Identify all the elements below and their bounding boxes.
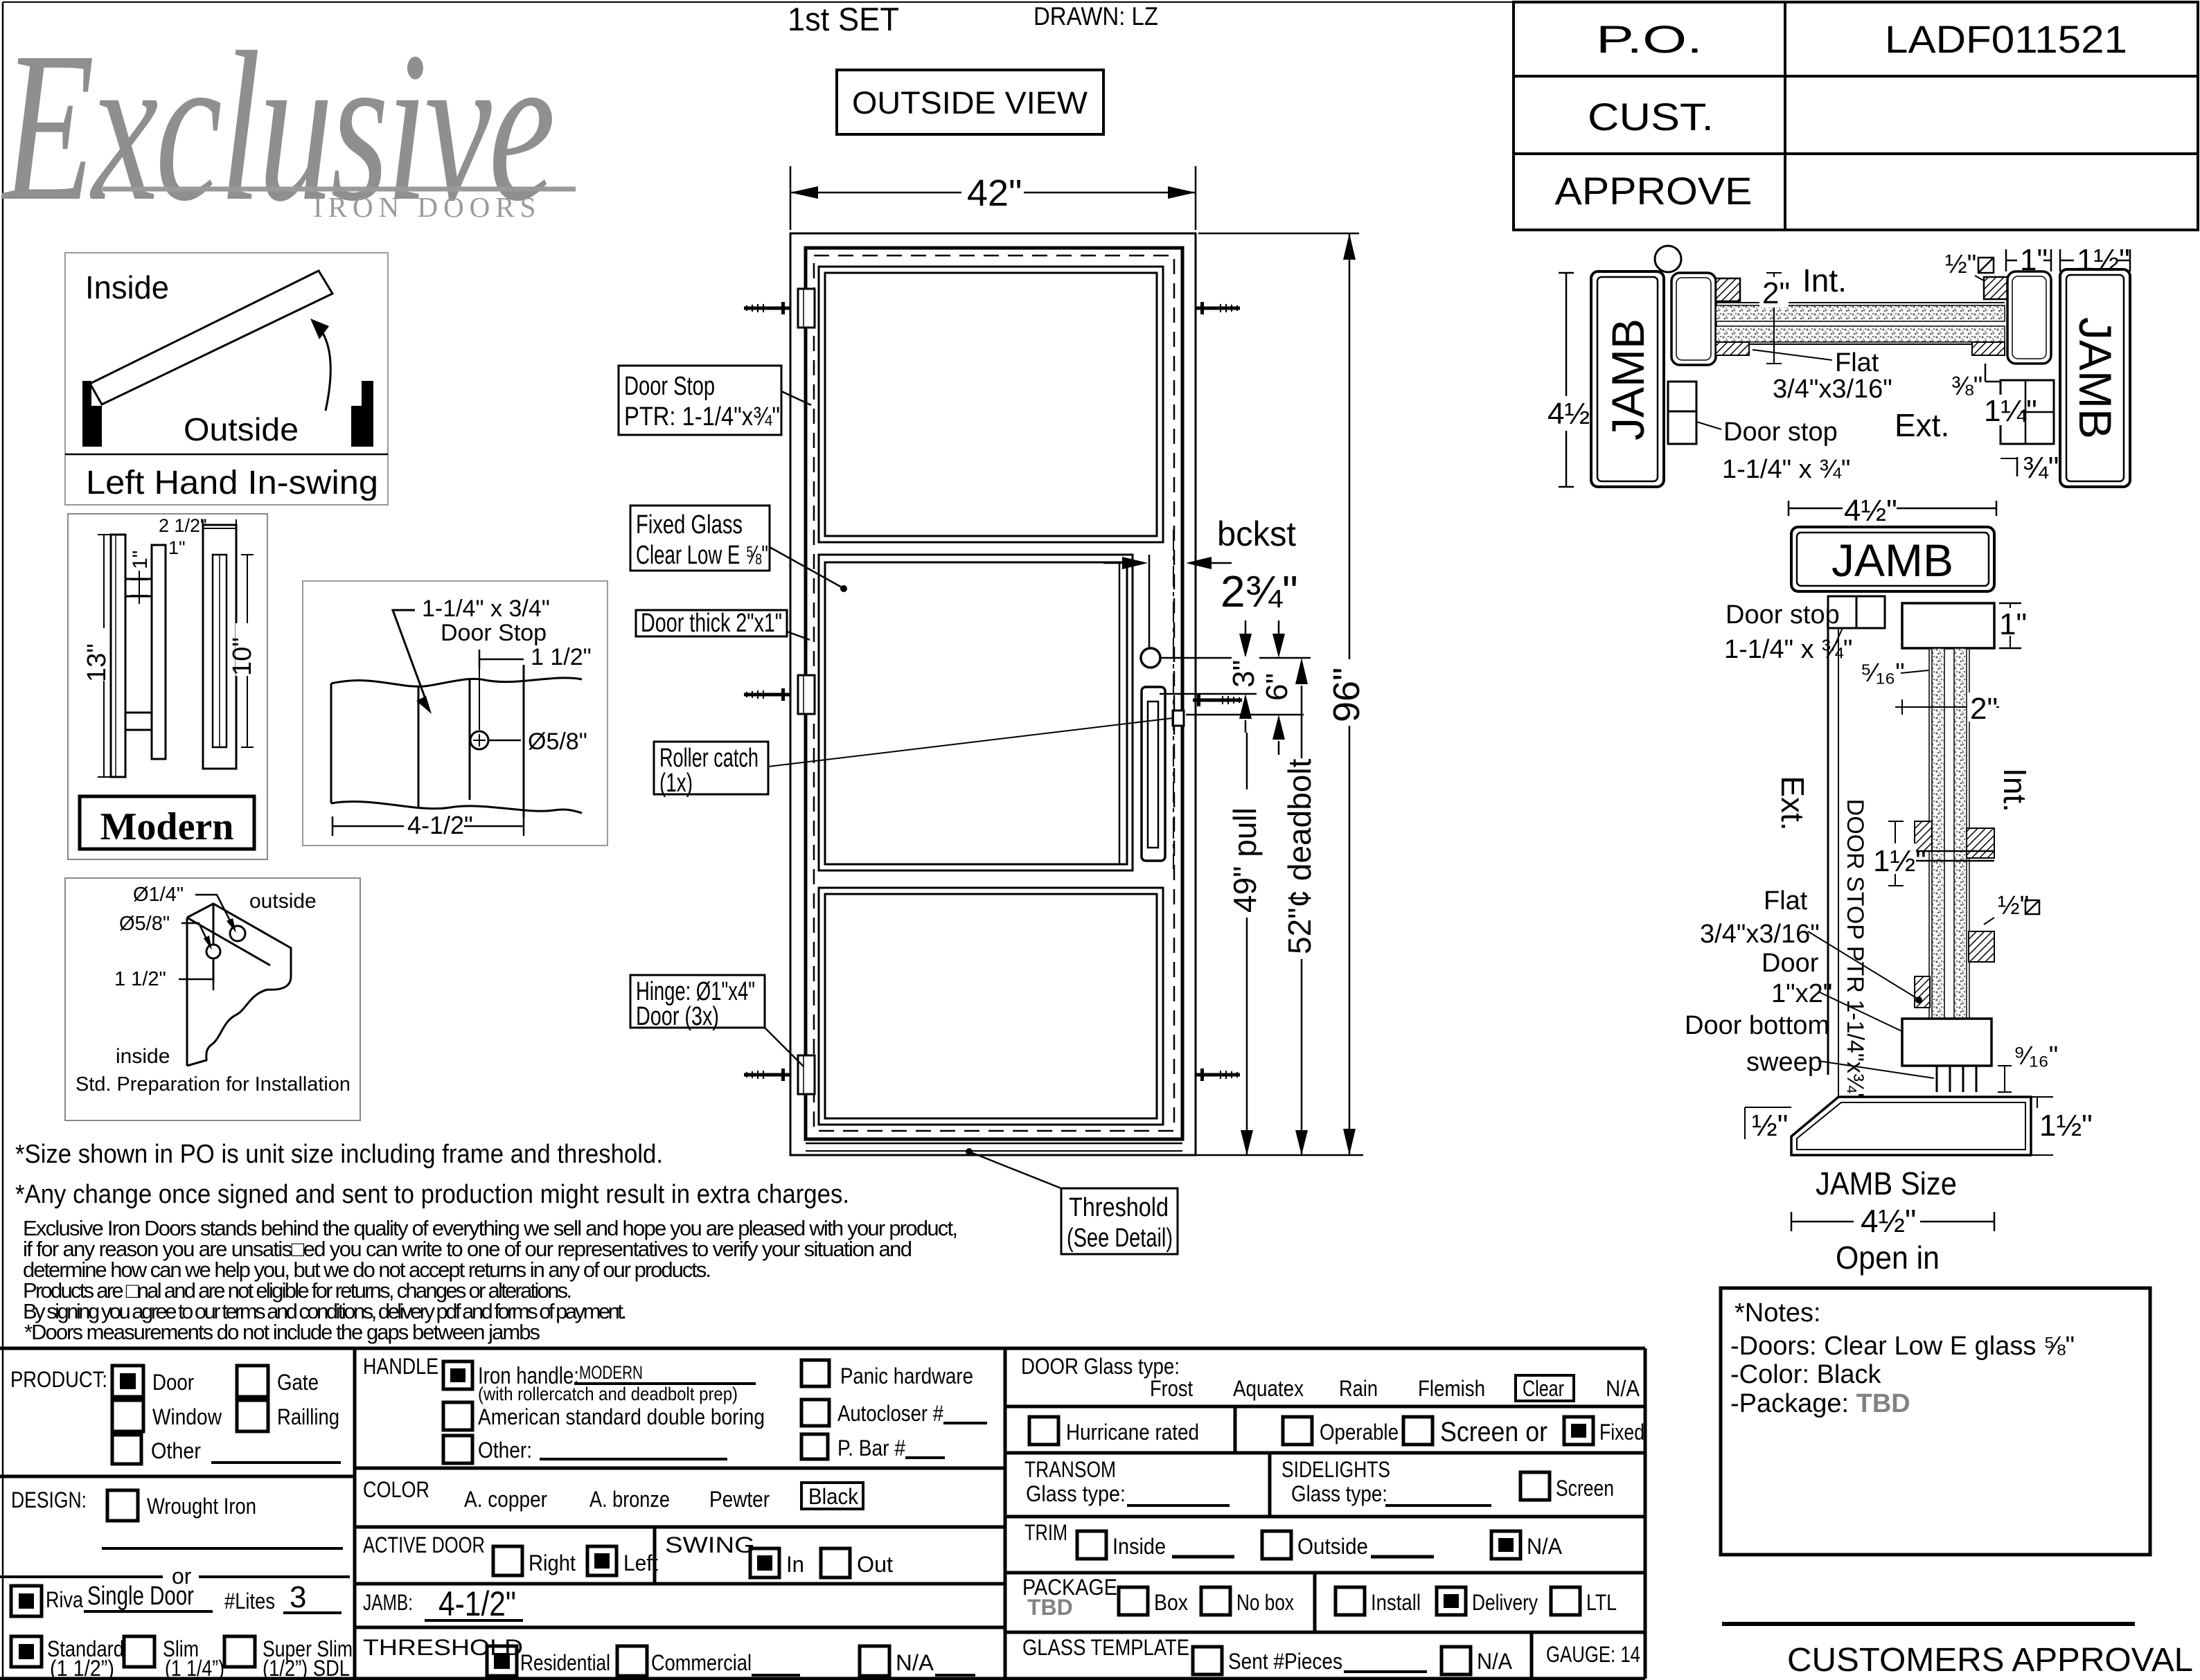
svg-text:GAUGE: 14: GAUGE: 14 <box>1546 1642 1640 1667</box>
svg-text:PRODUCT:: PRODUCT: <box>10 1367 107 1392</box>
svg-text:52"¢ deadbolt: 52"¢ deadbolt <box>1281 758 1318 954</box>
svg-text:Open in: Open in <box>1836 1240 1940 1276</box>
svg-text:Flemish: Flemish <box>1418 1376 1485 1401</box>
svg-text:Ø5/8": Ø5/8" <box>528 729 587 755</box>
svg-text:N/A: N/A <box>896 1650 934 1675</box>
svg-text:(1 1/4”): (1 1/4”) <box>165 1656 224 1680</box>
svg-text:(See Detail): (See Detail) <box>1067 1224 1173 1253</box>
svg-text:Commercial: Commercial <box>651 1650 752 1675</box>
svg-text:HANDLE: HANDLE <box>363 1354 438 1379</box>
svg-text:1-1/4" x ¾": 1-1/4" x ¾" <box>1724 635 1852 664</box>
svg-text:Operable: Operable <box>1320 1420 1399 1445</box>
svg-text:1": 1" <box>129 551 152 569</box>
svg-text:sweep: sweep <box>1746 1048 1822 1077</box>
svg-text:A. copper: A. copper <box>464 1487 547 1512</box>
svg-text:CUSTOMERS APPROVAL: CUSTOMERS APPROVAL <box>1787 1642 2193 1679</box>
svg-text:#Lites: #Lites <box>224 1589 275 1614</box>
svg-text:Ext.: Ext. <box>1775 776 1811 830</box>
svg-text:CUST.: CUST. <box>1588 95 1714 138</box>
svg-text:1-1/4" x 3/4": 1-1/4" x 3/4" <box>422 596 550 622</box>
svg-text:JAMB: JAMB <box>1831 535 1953 586</box>
svg-text:Std. Preparation for Installat: Std. Preparation for Installation <box>76 1073 351 1096</box>
svg-text:⁵⁄₁₆": ⁵⁄₁₆" <box>1861 659 1905 688</box>
svg-text:-Color: Black: -Color: Black <box>1730 1360 1881 1389</box>
svg-text:Fixed Glass: Fixed Glass <box>636 510 743 539</box>
svg-text:Ø1/4": Ø1/4" <box>133 884 184 906</box>
svg-text:3: 3 <box>290 1580 306 1614</box>
svg-text:Flat: Flat <box>1764 886 1808 915</box>
svg-text:Door stop: Door stop <box>1726 600 1840 629</box>
svg-text:inside: inside <box>116 1045 170 1068</box>
svg-text:Inside: Inside <box>85 269 169 305</box>
svg-text:-Doors: Clear Low E glass ⅝": -Doors: Clear Low E glass ⅝" <box>1730 1332 2075 1361</box>
svg-text:Ø5/8": Ø5/8" <box>119 913 170 935</box>
svg-text:Door (3x): Door (3x) <box>636 1002 719 1031</box>
svg-text:Railling: Railling <box>277 1404 339 1429</box>
svg-text:Delivery: Delivery <box>1472 1590 1538 1615</box>
svg-text:1¼": 1¼" <box>1984 394 2037 428</box>
svg-text:(1/2”) SDL: (1/2”) SDL <box>263 1656 350 1680</box>
svg-text:Door: Door <box>152 1370 194 1395</box>
svg-text:SIDELIGHTS: SIDELIGHTS <box>1281 1457 1390 1482</box>
svg-text:American standard double borin: American standard double boring <box>478 1404 765 1429</box>
svg-text:DOOR Glass type:: DOOR Glass type: <box>1021 1354 1180 1379</box>
svg-text:Wrought Iron: Wrought Iron <box>147 1494 256 1519</box>
svg-text:½": ½" <box>1945 250 1976 279</box>
svg-text:Screen or: Screen or <box>1440 1417 1547 1447</box>
svg-text:DRAWN: LZ: DRAWN: LZ <box>1034 2 1158 30</box>
svg-text:1": 1" <box>1999 607 2027 641</box>
svg-text:Autocloser #: Autocloser # <box>837 1401 943 1426</box>
svg-text:⅜": ⅜" <box>1951 372 1982 401</box>
svg-text:-Package: TBD: -Package: TBD <box>1730 1389 1910 1418</box>
svg-text:1": 1" <box>168 537 186 558</box>
svg-text:(1 1/2”): (1 1/2”) <box>50 1656 114 1680</box>
svg-text:A. bronze: A. bronze <box>589 1487 670 1512</box>
svg-text:1 1/2": 1 1/2" <box>114 968 166 990</box>
svg-text:Pewter: Pewter <box>709 1487 770 1512</box>
svg-text:PTR: 1-1/4"x¾": PTR: 1-1/4"x¾" <box>624 402 780 431</box>
svg-text:*Size shown in PO is unit size: *Size shown in PO is unit size including… <box>15 1140 663 1169</box>
svg-text:Clear Low E ⅝": Clear Low E ⅝" <box>636 541 768 570</box>
svg-text:TRANSOM: TRANSOM <box>1024 1457 1116 1482</box>
svg-text:96": 96" <box>1326 668 1367 722</box>
svg-text:½": ½" <box>1752 1109 1788 1143</box>
svg-text:JAMB: JAMB <box>1602 319 1653 440</box>
svg-text:*Any change once signed and se: *Any change once signed and sent to prod… <box>15 1180 849 1209</box>
svg-text:1½": 1½" <box>2039 1109 2093 1143</box>
svg-text:¾": ¾" <box>2023 451 2059 485</box>
svg-text:(1x): (1x) <box>659 769 693 798</box>
svg-text:Door bottom: Door bottom <box>1685 1011 1829 1040</box>
svg-text:Gate: Gate <box>277 1370 319 1395</box>
svg-text:2": 2" <box>1762 276 1790 310</box>
svg-text:Glass type:: Glass type: <box>1291 1481 1387 1506</box>
svg-text:JAMB: JAMB <box>2070 317 2121 439</box>
svg-text:Door stop: Door stop <box>1723 418 1838 447</box>
svg-text:3/4"x3/16": 3/4"x3/16" <box>1773 375 1892 404</box>
svg-text:Door Stop: Door Stop <box>441 620 547 646</box>
svg-text:4-1/2": 4-1/2" <box>438 1584 516 1623</box>
svg-text:6": 6" <box>1260 673 1294 701</box>
svg-text:2 1/2": 2 1/2" <box>159 515 207 536</box>
svg-text:Hurricane rated: Hurricane rated <box>1066 1420 1199 1445</box>
svg-text:In: In <box>786 1552 804 1577</box>
svg-text:DESIGN:: DESIGN: <box>11 1487 87 1512</box>
svg-text:outside: outside <box>249 890 317 913</box>
svg-text:N/A: N/A <box>1477 1649 1513 1674</box>
svg-text:LTL: LTL <box>1586 1590 1617 1615</box>
svg-text:Other: Other <box>151 1438 201 1463</box>
svg-text:Outside: Outside <box>1297 1534 1368 1559</box>
svg-text:bckst: bckst <box>1217 515 1296 553</box>
svg-text:1st SET: 1st SET <box>788 1 899 37</box>
svg-text:Residential: Residential <box>520 1650 610 1675</box>
svg-text:Window: Window <box>152 1404 222 1429</box>
svg-text:Rain: Rain <box>1339 1376 1378 1401</box>
svg-text:Clear: Clear <box>1523 1376 1564 1401</box>
svg-text:1 1/2": 1 1/2" <box>531 644 592 670</box>
svg-text:COLOR: COLOR <box>363 1477 429 1502</box>
svg-text:P.O.: P.O. <box>1596 17 1703 61</box>
svg-text:Door: Door <box>1762 949 1819 978</box>
svg-text:Frost: Frost <box>1150 1376 1193 1401</box>
svg-text:Box: Box <box>1154 1590 1188 1615</box>
svg-text:3": 3" <box>1227 660 1261 688</box>
svg-text:Door Stop: Door Stop <box>624 372 715 401</box>
svg-text:MODERN: MODERN <box>579 1362 643 1383</box>
svg-text:4½": 4½" <box>1844 494 1897 528</box>
svg-text:LADF011521: LADF011521 <box>1885 17 2127 61</box>
svg-text:42": 42" <box>967 172 1022 214</box>
svg-text:Install: Install <box>1371 1590 1421 1615</box>
svg-text:IRON DOORS: IRON DOORS <box>313 191 541 223</box>
svg-text:Flat: Flat <box>1835 348 1879 377</box>
svg-text:2¾": 2¾" <box>1221 566 1298 616</box>
svg-text:Left Hand In-swing: Left Hand In-swing <box>86 465 378 501</box>
svg-text:Riva: Riva <box>46 1587 83 1612</box>
svg-text:Int.: Int. <box>1802 262 1847 298</box>
svg-text:Aquatex: Aquatex <box>1233 1376 1304 1401</box>
svg-text:Right: Right <box>529 1551 576 1575</box>
svg-text:Other:: Other: <box>478 1438 532 1463</box>
svg-text:Single Door: Single Door <box>87 1582 194 1611</box>
svg-text:Sent #Pieces: Sent #Pieces <box>1228 1649 1342 1674</box>
svg-text:N/A: N/A <box>1606 1376 1640 1401</box>
svg-text:JAMB Size: JAMB Size <box>1816 1165 1957 1201</box>
svg-text:*Doors measurements do not inc: *Doors measurements do not include the g… <box>24 1320 540 1344</box>
svg-text:2": 2" <box>1970 692 1998 726</box>
svg-text:N/A: N/A <box>1527 1534 1563 1559</box>
svg-text:Door thick 2"x1": Door thick 2"x1" <box>641 609 782 638</box>
svg-text:Screen: Screen <box>1556 1476 1614 1501</box>
svg-text:No box: No box <box>1236 1590 1294 1615</box>
svg-text:TRIM: TRIM <box>1024 1520 1067 1545</box>
svg-text:½": ½" <box>1998 891 2029 920</box>
svg-text:P. Bar #: P. Bar # <box>837 1436 905 1460</box>
svg-text:Int.: Int. <box>1997 768 2033 812</box>
svg-text:Modern: Modern <box>100 805 234 848</box>
svg-text:3/4"x3/16": 3/4"x3/16" <box>1700 920 1820 949</box>
svg-text:Panic hardware: Panic hardware <box>840 1364 973 1388</box>
svg-text:1-1/4" x ¾": 1-1/4" x ¾" <box>1722 455 1850 484</box>
svg-text:4-1/2": 4-1/2" <box>407 811 473 839</box>
svg-text:4½": 4½" <box>1861 1203 1916 1239</box>
svg-text:JAMB:: JAMB: <box>363 1590 413 1615</box>
svg-text:Out: Out <box>857 1552 893 1577</box>
svg-text:APPROVE: APPROVE <box>1555 169 1753 213</box>
svg-text:Fixed: Fixed <box>1599 1420 1644 1445</box>
svg-text:TBD: TBD <box>1027 1595 1073 1620</box>
svg-text:OUTSIDE VIEW: OUTSIDE VIEW <box>852 85 1088 120</box>
svg-text:Black: Black <box>808 1484 859 1509</box>
svg-text:Glass type:: Glass type: <box>1026 1481 1126 1506</box>
svg-text:1½": 1½" <box>1873 844 1926 878</box>
svg-text:GLASS TEMPLATE: GLASS TEMPLATE <box>1022 1635 1189 1660</box>
svg-text:DOOR STOP PTR 1-1/4"x¾": DOOR STOP PTR 1-1/4"x¾" <box>1842 799 1868 1102</box>
svg-text:49" pull: 49" pull <box>1227 807 1263 913</box>
svg-text:SWING: SWING <box>665 1532 755 1557</box>
svg-text:13": 13" <box>82 643 112 682</box>
svg-text:*Notes:: *Notes: <box>1735 1298 1821 1328</box>
svg-text:Threshold: Threshold <box>1069 1193 1169 1222</box>
svg-text:Ext.: Ext. <box>1895 407 1949 443</box>
svg-text:Outside: Outside <box>184 411 299 447</box>
svg-text:Inside: Inside <box>1112 1534 1166 1559</box>
svg-text:⁹⁄₁₆": ⁹⁄₁₆" <box>2014 1042 2058 1071</box>
svg-text:(with rollercatch and deadbolt: (with rollercatch and deadbolt prep) <box>478 1384 738 1404</box>
svg-text:Left: Left <box>623 1551 658 1575</box>
svg-text:ACTIVE DOOR: ACTIVE DOOR <box>363 1532 485 1557</box>
svg-text:10": 10" <box>228 637 257 676</box>
